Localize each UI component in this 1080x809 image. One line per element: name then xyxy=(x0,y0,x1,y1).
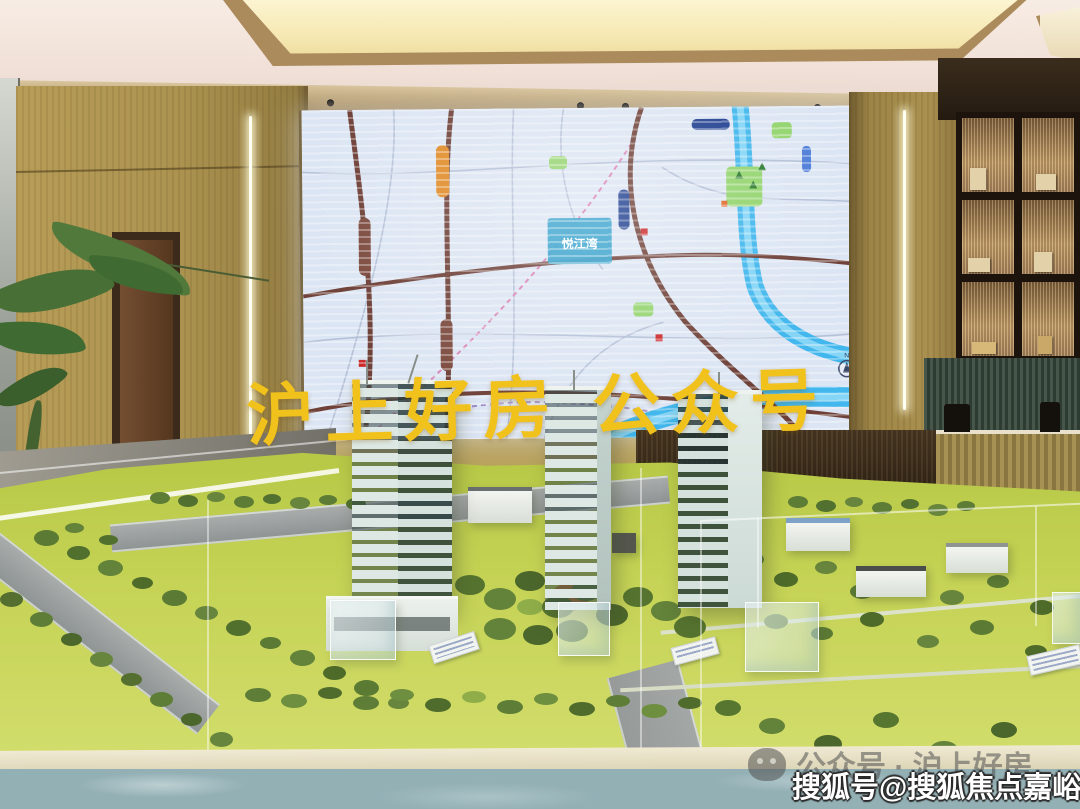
glass-joint xyxy=(757,518,759,628)
wechat-icon xyxy=(748,748,786,781)
counter-object xyxy=(1040,402,1060,432)
model-low-building xyxy=(946,543,1008,573)
acrylic-block xyxy=(1052,592,1080,644)
model-shrubs xyxy=(715,700,741,716)
model-trees xyxy=(455,575,485,595)
shelf-niche xyxy=(962,200,1014,274)
shelf-niche xyxy=(1022,200,1074,274)
glass-joint xyxy=(207,500,209,752)
shelf-niche xyxy=(962,118,1014,192)
model-gatehouse xyxy=(612,533,636,553)
decor-object xyxy=(968,258,990,272)
model-trees xyxy=(788,496,808,508)
model-trees xyxy=(0,592,23,607)
model-shrubs xyxy=(245,688,271,702)
glass-joint xyxy=(1035,506,1037,626)
glass-joint xyxy=(640,468,642,758)
display-shelf xyxy=(956,112,1080,362)
decor-object xyxy=(1036,174,1056,190)
decor-object xyxy=(972,342,996,354)
shelf-niche xyxy=(962,282,1014,356)
shelf-niche xyxy=(1022,118,1074,192)
shelf-niche xyxy=(1022,282,1074,356)
model-pavilion xyxy=(856,566,926,597)
model-trees xyxy=(150,492,170,504)
counter-object xyxy=(944,404,970,432)
acrylic-block xyxy=(330,600,396,660)
glass-joint xyxy=(700,522,702,758)
led-strip-right xyxy=(903,110,906,410)
model-low-building xyxy=(786,518,850,551)
model-clubhouse xyxy=(468,487,532,523)
watermark-main: 沪上好房 公众号 xyxy=(245,343,868,459)
downlight-icon xyxy=(327,99,334,106)
sales-center-photo: 悦江湾 N xyxy=(0,0,1080,809)
decor-object xyxy=(1034,252,1052,272)
decor-object xyxy=(1038,336,1052,354)
decor-object xyxy=(970,168,986,190)
acrylic-block xyxy=(558,602,610,656)
model-trees xyxy=(34,530,59,546)
watermark-sohu: 搜狐号@搜狐焦点嘉峪关站 xyxy=(792,764,1080,806)
shelf-soffit xyxy=(938,58,1080,120)
